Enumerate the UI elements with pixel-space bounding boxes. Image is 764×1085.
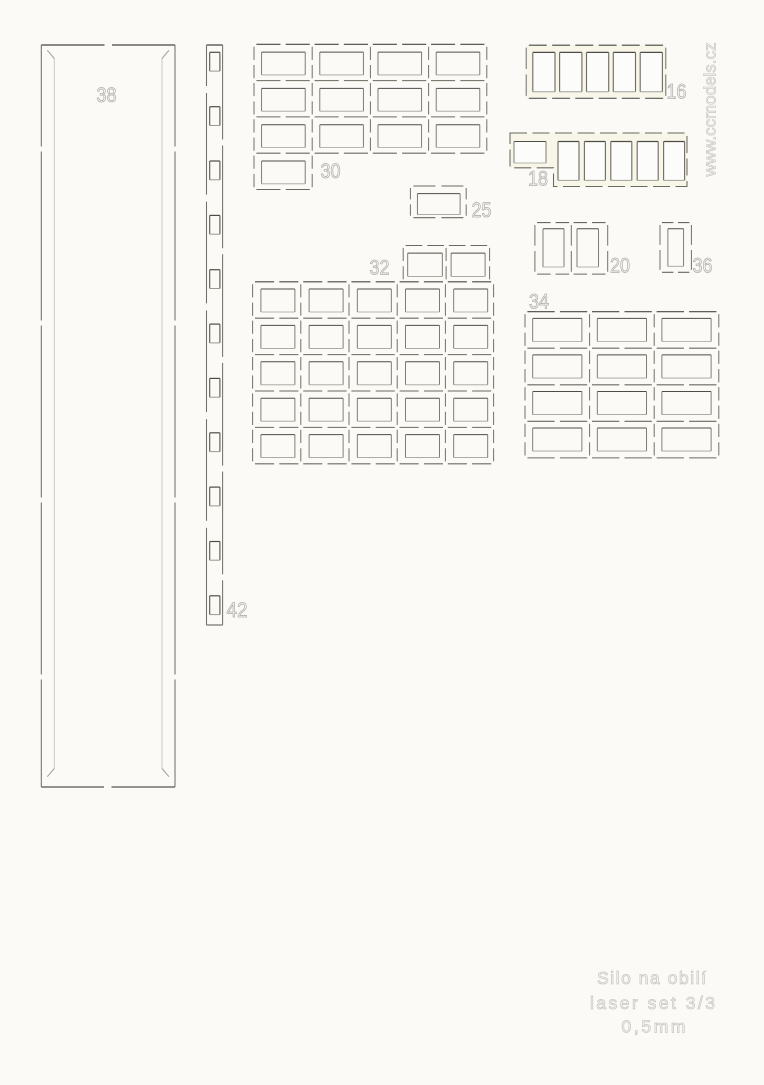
svg-text:34: 34 (529, 290, 549, 314)
svg-text:www.ccmodels.cz: www.ccmodels.cz (701, 43, 720, 178)
svg-text:25: 25 (472, 198, 492, 222)
svg-text:38: 38 (97, 83, 117, 107)
svg-text:0,5mm: 0,5mm (622, 1017, 686, 1037)
svg-text:32: 32 (370, 256, 390, 280)
svg-text:18: 18 (528, 167, 548, 191)
svg-text:30: 30 (321, 159, 341, 183)
svg-text:20: 20 (610, 254, 630, 278)
svg-text:16: 16 (667, 80, 687, 104)
svg-text:42: 42 (227, 598, 248, 622)
svg-text:Silo na obilí: Silo na obilí (597, 968, 706, 988)
svg-text:36: 36 (693, 254, 713, 278)
